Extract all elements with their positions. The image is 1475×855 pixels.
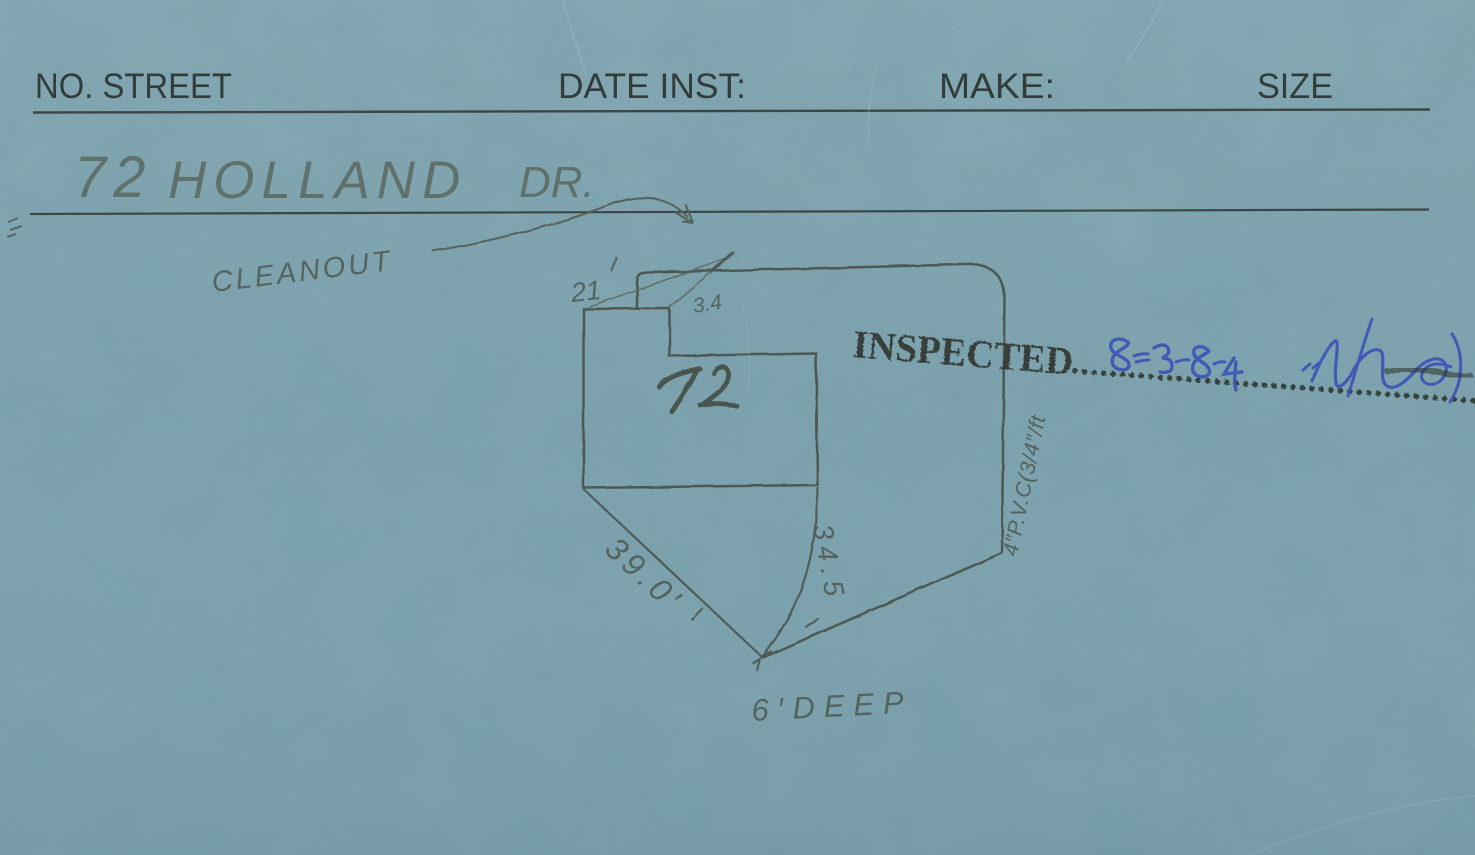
svg-text:MAKE:: MAKE: — [939, 67, 1055, 106]
svg-text:3.4: 3.4 — [691, 291, 723, 318]
svg-text:21: 21 — [568, 275, 602, 308]
svg-text:HOLLAND: HOLLAND — [168, 151, 467, 210]
svg-text:72: 72 — [74, 145, 153, 210]
svg-text:DATE INST:: DATE INST: — [558, 67, 746, 106]
svg-text:SIZE: SIZE — [1257, 67, 1333, 106]
svg-text:DR.: DR. — [519, 158, 595, 207]
svg-text:NO. STREET: NO. STREET — [35, 67, 232, 106]
